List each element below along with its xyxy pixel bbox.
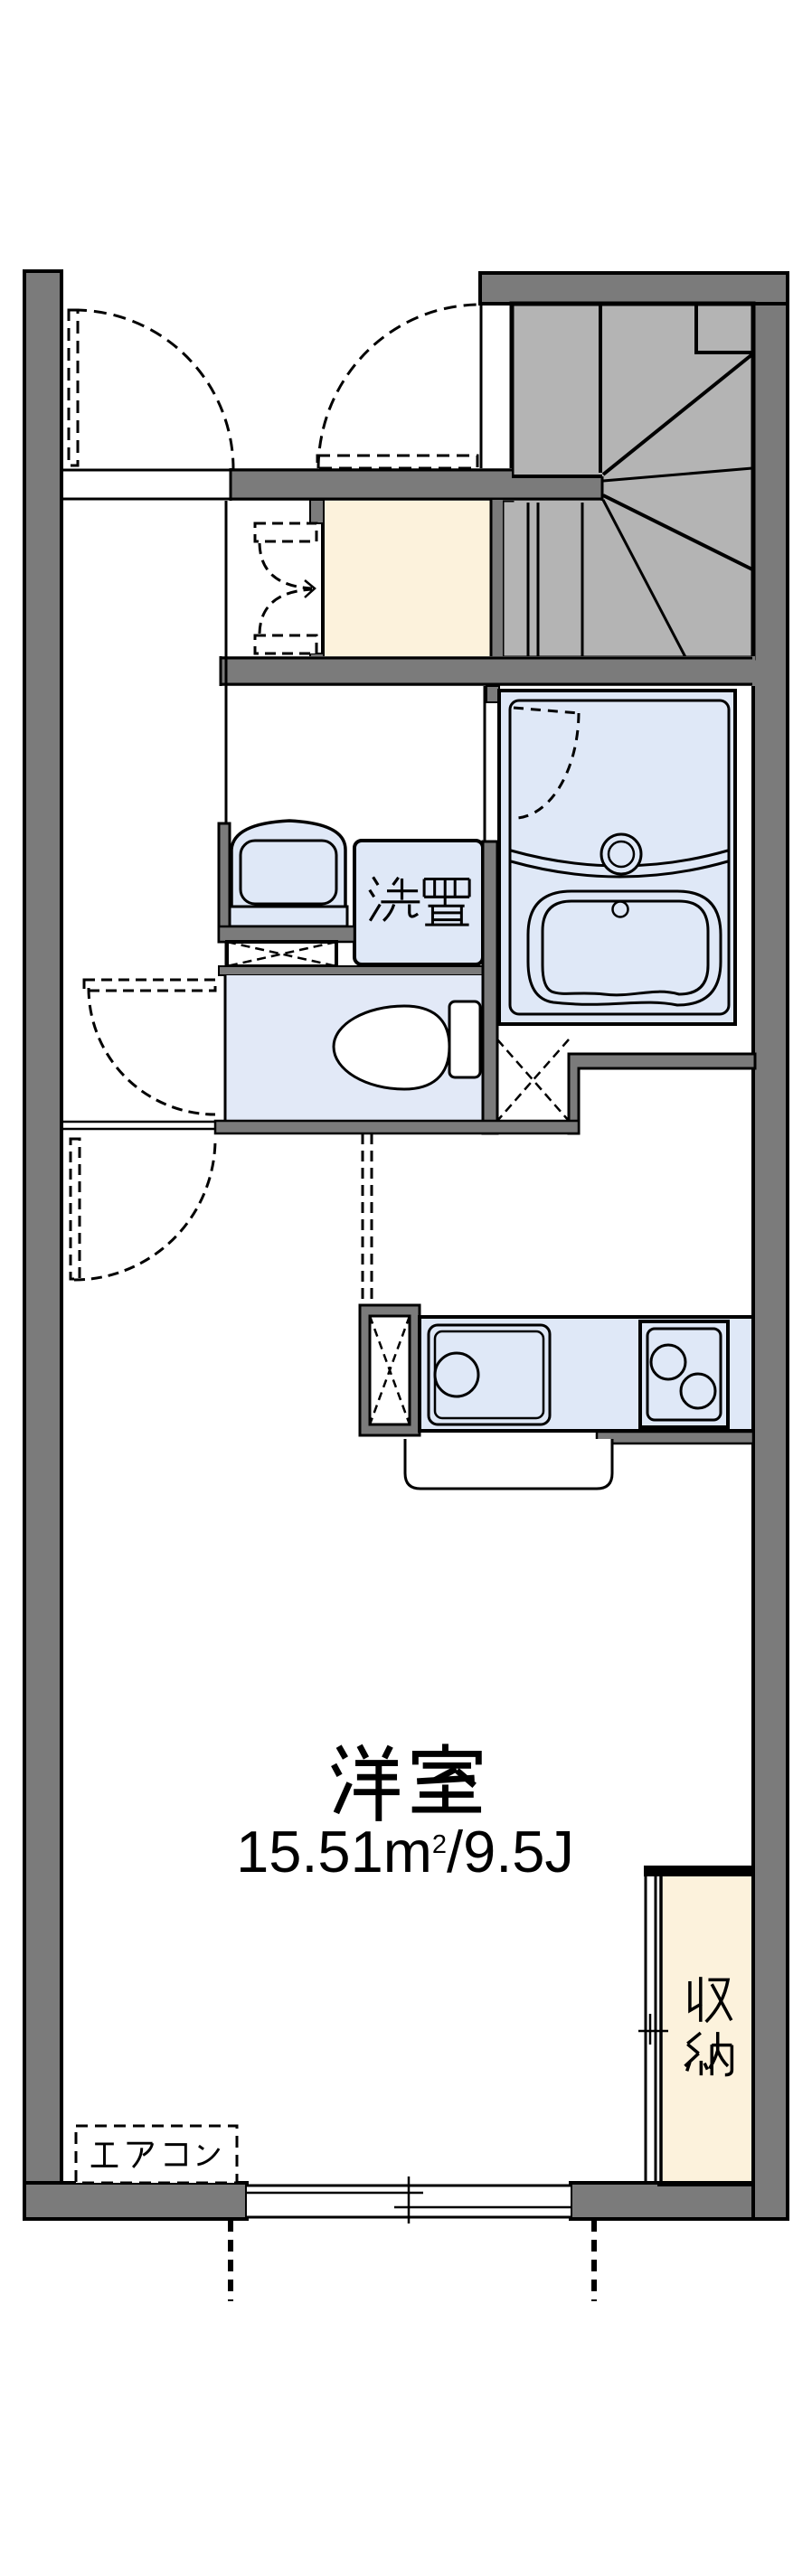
svg-text:15.51m2/9.5J: 15.51m2/9.5J (236, 1819, 574, 1885)
